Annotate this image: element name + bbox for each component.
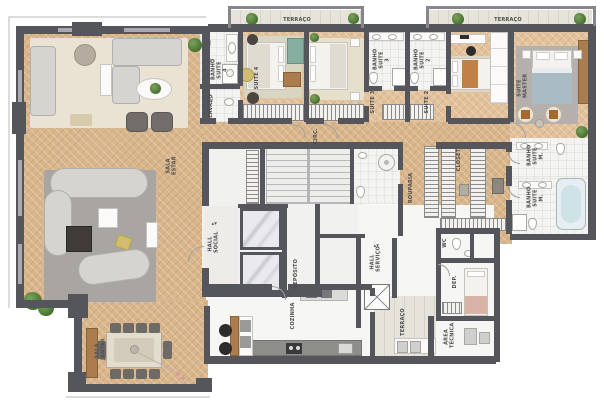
nightstand (350, 92, 360, 101)
closet-island (492, 178, 504, 194)
wall-segment (398, 142, 403, 170)
label-rouparia: ROUPARIA (409, 168, 415, 208)
cooktop-burner (289, 346, 293, 350)
wall-segment (242, 118, 292, 124)
label-banho-suite-3: BANHO SUITE 3 (373, 50, 390, 70)
bathtub-basin (561, 185, 581, 223)
bed-pillow (452, 61, 458, 73)
plant (348, 13, 359, 24)
elevator (240, 208, 282, 250)
stairs-divider (307, 146, 310, 204)
stool (219, 342, 232, 355)
sink (413, 34, 422, 40)
label-sala-jantar: SALA JANTAR (95, 342, 107, 360)
sink (224, 98, 234, 106)
washer (397, 341, 408, 353)
wall-segment (398, 206, 403, 236)
wall-segment (405, 30, 410, 92)
label-suite-3: SUITE 3 (371, 88, 377, 116)
label-dep: DEP. (453, 273, 459, 291)
plant (188, 38, 202, 52)
armchair (74, 44, 96, 66)
wall-segment (200, 84, 240, 89)
wall-segment (204, 356, 496, 364)
dining-chair (110, 369, 121, 379)
terrace-rail (361, 6, 364, 28)
wall-segment (446, 26, 451, 94)
bed-pillow (310, 46, 316, 63)
wardrobe-shelves (442, 302, 462, 314)
wall-segment (510, 234, 596, 240)
wall-segment (228, 118, 242, 124)
wall-segment (304, 26, 309, 122)
wardrobe-shelves (382, 104, 407, 120)
wall-segment (364, 30, 369, 92)
kitchen-sink (338, 343, 353, 354)
plant (576, 126, 588, 138)
wall-segment (238, 30, 243, 86)
wall-segment (506, 200, 512, 234)
wall-segment (494, 228, 500, 362)
terrace-rail (593, 6, 596, 26)
sink (358, 152, 367, 159)
wall-segment (202, 142, 400, 149)
pouf (247, 34, 258, 45)
terrace-rail (228, 6, 364, 9)
console-table (100, 64, 112, 96)
window-segment (124, 28, 170, 32)
wall-segment (436, 258, 494, 263)
bed-pillow (467, 271, 485, 277)
terrace-rail (426, 6, 429, 28)
wall-segment (364, 106, 369, 122)
sink (429, 34, 438, 40)
terrace-rail (228, 6, 231, 28)
coffee-table-dark (66, 226, 92, 252)
wall-segment (356, 238, 361, 328)
pouf (247, 92, 259, 104)
closet-shelves (441, 146, 456, 218)
wardrobe (287, 38, 304, 64)
label-wc: WC (443, 237, 449, 249)
window-segment (18, 244, 22, 284)
label-hall-servico: HALL SERVIÇO (370, 252, 382, 272)
shower (512, 214, 527, 231)
wall-segment (428, 316, 434, 360)
label-cozinha: COZINHA (291, 299, 297, 333)
label-terraco-servico: TERRAÇO (401, 305, 407, 339)
label-hall-social: HALL SOCIAL (208, 235, 220, 253)
storage-shelves (246, 150, 259, 204)
monitor (460, 35, 469, 39)
wall-segment (470, 228, 474, 258)
cooktop-burner (296, 346, 300, 350)
label-banho-suite-4: BANHO SUITE 4 (211, 60, 228, 80)
armchair (126, 112, 148, 132)
side-table (98, 208, 118, 228)
column (72, 22, 102, 36)
label-area-tecnica: ÁREA TÉCNICA (444, 326, 456, 348)
dining-chair (123, 323, 134, 333)
bed-blanket (532, 68, 572, 104)
label-deposito: DEPÓSITO (294, 256, 300, 292)
bed-pillow (536, 52, 550, 60)
wall-segment (204, 306, 210, 358)
label-suite-2: SUITE 2 (425, 88, 431, 116)
equipment (479, 332, 490, 344)
label-banho-suite-m1: BANHO SUITE M. (527, 146, 544, 166)
wall-segment (448, 118, 510, 124)
plant (150, 83, 161, 94)
tv-console (146, 222, 158, 248)
armchair-cushion (549, 110, 558, 119)
bed-blanket (465, 296, 487, 314)
label-banho-suite-m2: BANHO SUITE M. (527, 188, 544, 208)
wall-segment (436, 316, 494, 321)
bed-pillow (554, 52, 568, 60)
slab-edge (8, 16, 206, 18)
placemat (240, 320, 251, 332)
placemat (240, 336, 251, 348)
nightstand (522, 50, 531, 59)
stool (219, 324, 232, 337)
wall-segment (405, 88, 410, 122)
bed-pillow (452, 75, 458, 87)
wall-segment (16, 26, 208, 34)
dining-chair (149, 323, 160, 333)
label-lavabo: LAVABO (209, 89, 215, 123)
dining-chair (163, 341, 172, 359)
nightstand (573, 50, 582, 59)
sink (372, 34, 381, 40)
wall-segment (74, 384, 210, 392)
label-closet: CLOSET (457, 145, 463, 175)
label-suite-master: SUITE MASTER (517, 78, 529, 98)
pendant-lamp (176, 372, 180, 376)
bed-blanket (462, 60, 478, 88)
sofa (30, 46, 56, 116)
window-segment (18, 160, 22, 216)
label-circ: CIRC. (314, 124, 320, 148)
wardrobe (490, 32, 508, 104)
shower-drain (384, 160, 389, 165)
shower (433, 68, 447, 86)
plant (310, 33, 319, 42)
label-banho-suite-2: BANHO SUITE 2 (414, 50, 431, 70)
sink (388, 34, 397, 40)
wall-segment (370, 312, 375, 358)
shower (392, 68, 406, 86)
desk (283, 72, 301, 87)
elevator-call-icon: ▲▼ (374, 244, 379, 248)
dining-chair (149, 369, 160, 379)
armchair (151, 112, 173, 132)
floor-plan: TERRAÇO TERRAÇO SALA ESTAR SALA JANTAR B… (0, 0, 604, 413)
column (12, 102, 26, 134)
wall-segment (338, 118, 364, 124)
closet-island (459, 184, 469, 196)
side-table (535, 119, 544, 128)
terrace-rail (426, 6, 596, 9)
wall-segment (436, 228, 498, 234)
wall-segment (350, 146, 354, 204)
column (196, 378, 212, 392)
wall-segment (315, 204, 320, 294)
wall-segment (208, 284, 272, 290)
wall-segment (260, 142, 265, 204)
bed-pillow (278, 46, 284, 63)
sofa-l-shape (112, 38, 182, 66)
wall-segment (508, 26, 514, 122)
sink (228, 42, 236, 54)
wall-segment (392, 238, 397, 298)
label-sala-estar: SALA ESTAR (166, 157, 178, 175)
wall-segment (430, 86, 446, 91)
wall-segment (282, 204, 287, 298)
closet-shelves (470, 146, 486, 218)
wall-segment (394, 86, 418, 91)
equipment (464, 328, 477, 345)
bed-pillow (310, 65, 316, 82)
rug-accent (70, 114, 92, 126)
washer (410, 341, 421, 353)
wall-segment (288, 284, 372, 290)
slab-edge (8, 16, 10, 308)
elevator-call-icon: ▲▼ (212, 222, 217, 226)
wall-segment (238, 204, 288, 208)
pendant-lamp (181, 376, 185, 380)
dining-chair (123, 369, 134, 379)
closet-shelves (424, 146, 439, 218)
wall-segment (506, 166, 512, 186)
bed-fold (532, 68, 572, 73)
bed-blanket (330, 44, 346, 88)
dining-chair (136, 369, 147, 379)
wall-segment (436, 142, 512, 149)
wall-segment (202, 290, 322, 297)
office-chair (466, 46, 476, 56)
wall-segment (208, 24, 594, 32)
label-terraco-1: TERRAÇO (275, 18, 319, 24)
nightstand (350, 38, 360, 47)
wall-segment (202, 142, 209, 206)
slab-edge (66, 396, 210, 398)
label-terraco-2: TERRAÇO (486, 18, 530, 24)
label-suite-4: SUITE 4 (255, 64, 261, 92)
dining-chair (110, 323, 121, 333)
plant (310, 94, 320, 104)
appliance (321, 289, 332, 298)
armchair-cushion (521, 110, 530, 119)
dining-chair (136, 323, 147, 333)
wall-segment (588, 26, 596, 240)
wall-segment (398, 184, 403, 206)
